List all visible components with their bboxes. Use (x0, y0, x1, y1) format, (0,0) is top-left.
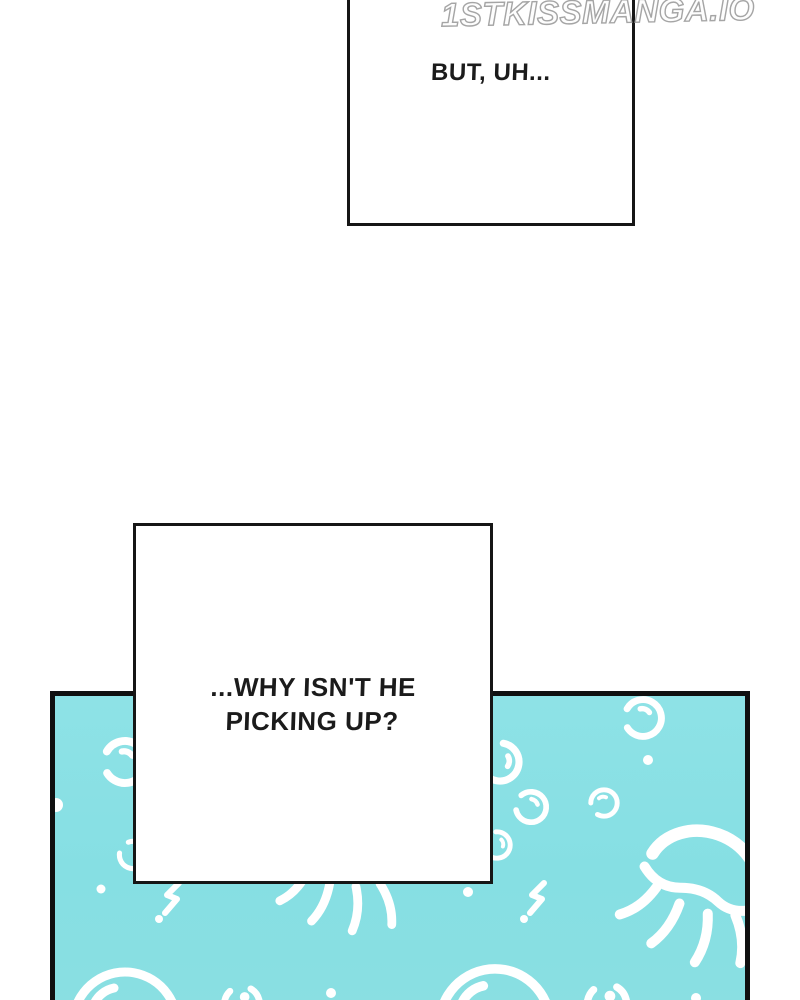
bubble-dot-icon (691, 993, 701, 1000)
speech-text-top: BUT, UH... (431, 59, 552, 87)
speech-line-1: ...WHY ISN'T HE (210, 670, 417, 704)
bubble-icon (218, 980, 266, 1000)
site-watermark: 1STKISSMANGA.IO (441, 0, 755, 34)
lightning-icon (520, 883, 544, 923)
speech-text-middle: ...WHY ISN'T HE PICKING UP? (209, 670, 417, 738)
comic-page: BUT, UH... ...WHY ISN'T HE PICKING UP? 1… (0, 0, 800, 1000)
bubble-dot-icon (643, 755, 653, 765)
bubble-dot-icon (97, 885, 106, 894)
bubble-icon (580, 977, 634, 1000)
bubble-icon (431, 960, 559, 1000)
speech-line-2: PICKING UP? (209, 704, 416, 738)
speech-bubble-top: BUT, UH... (347, 0, 635, 226)
speech-bubble-middle: ...WHY ISN'T HE PICKING UP? (133, 523, 493, 884)
bubble-icon (618, 696, 668, 743)
lightning-icon (155, 883, 179, 923)
bubble-dot-icon (463, 887, 473, 897)
bubble-dot-icon (326, 988, 336, 998)
bubble-icon (65, 964, 185, 1000)
bubble-dot-icon (55, 798, 63, 812)
bubble-icon (504, 780, 557, 833)
bubble-icon (579, 778, 628, 827)
jellyfish-icon (614, 811, 745, 978)
